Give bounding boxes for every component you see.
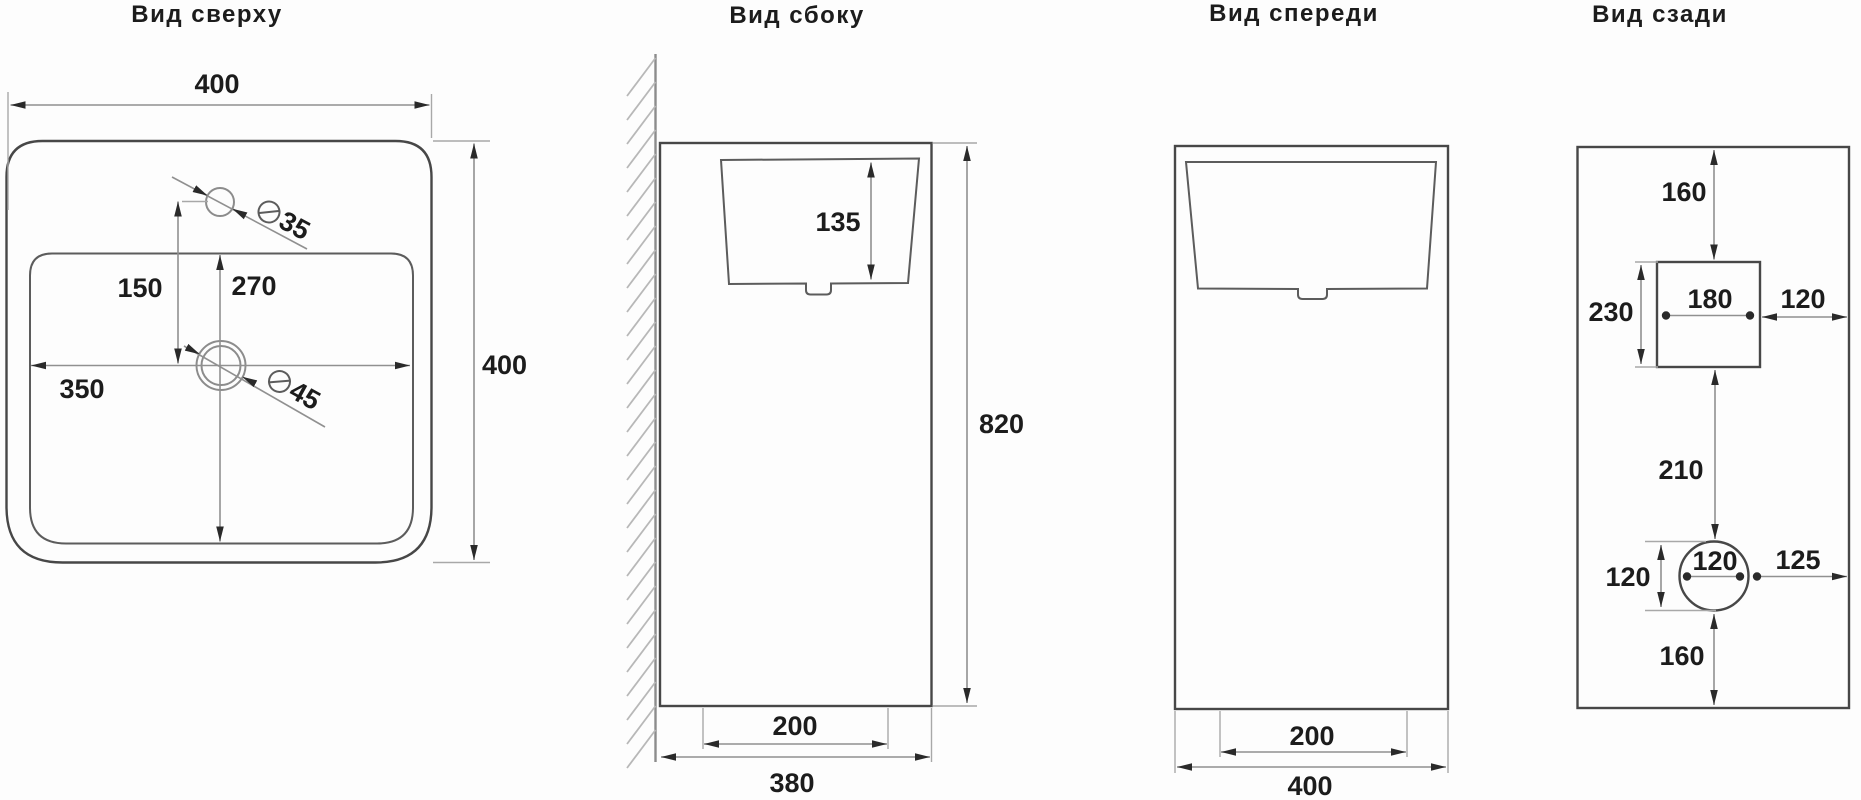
- svg-text:270: 270: [231, 271, 276, 301]
- svg-text:Вид сбоку: Вид сбоку: [729, 2, 864, 29]
- svg-text:160: 160: [1659, 641, 1704, 671]
- svg-text:400: 400: [194, 69, 239, 99]
- svg-text:200: 200: [1289, 721, 1334, 751]
- svg-text:180: 180: [1687, 284, 1732, 314]
- svg-text:120: 120: [1692, 546, 1737, 576]
- svg-text:820: 820: [979, 409, 1024, 439]
- svg-text:380: 380: [769, 768, 814, 798]
- svg-text:230: 230: [1588, 297, 1633, 327]
- svg-text:Вид сверху: Вид сверху: [131, 1, 282, 28]
- svg-text:Вид спереди: Вид спереди: [1209, 0, 1379, 27]
- svg-text:160: 160: [1661, 177, 1706, 207]
- svg-text:150: 150: [117, 273, 162, 303]
- svg-text:210: 210: [1658, 455, 1703, 485]
- svg-text:Вид сзади: Вид сзади: [1592, 1, 1728, 28]
- svg-text:120: 120: [1780, 284, 1825, 314]
- svg-text:135: 135: [815, 207, 860, 237]
- svg-text:200: 200: [772, 711, 817, 741]
- svg-text:350: 350: [59, 374, 104, 404]
- svg-text:400: 400: [482, 350, 527, 380]
- svg-text:400: 400: [1287, 771, 1332, 800]
- svg-text:125: 125: [1775, 545, 1820, 575]
- svg-text:120: 120: [1605, 562, 1650, 592]
